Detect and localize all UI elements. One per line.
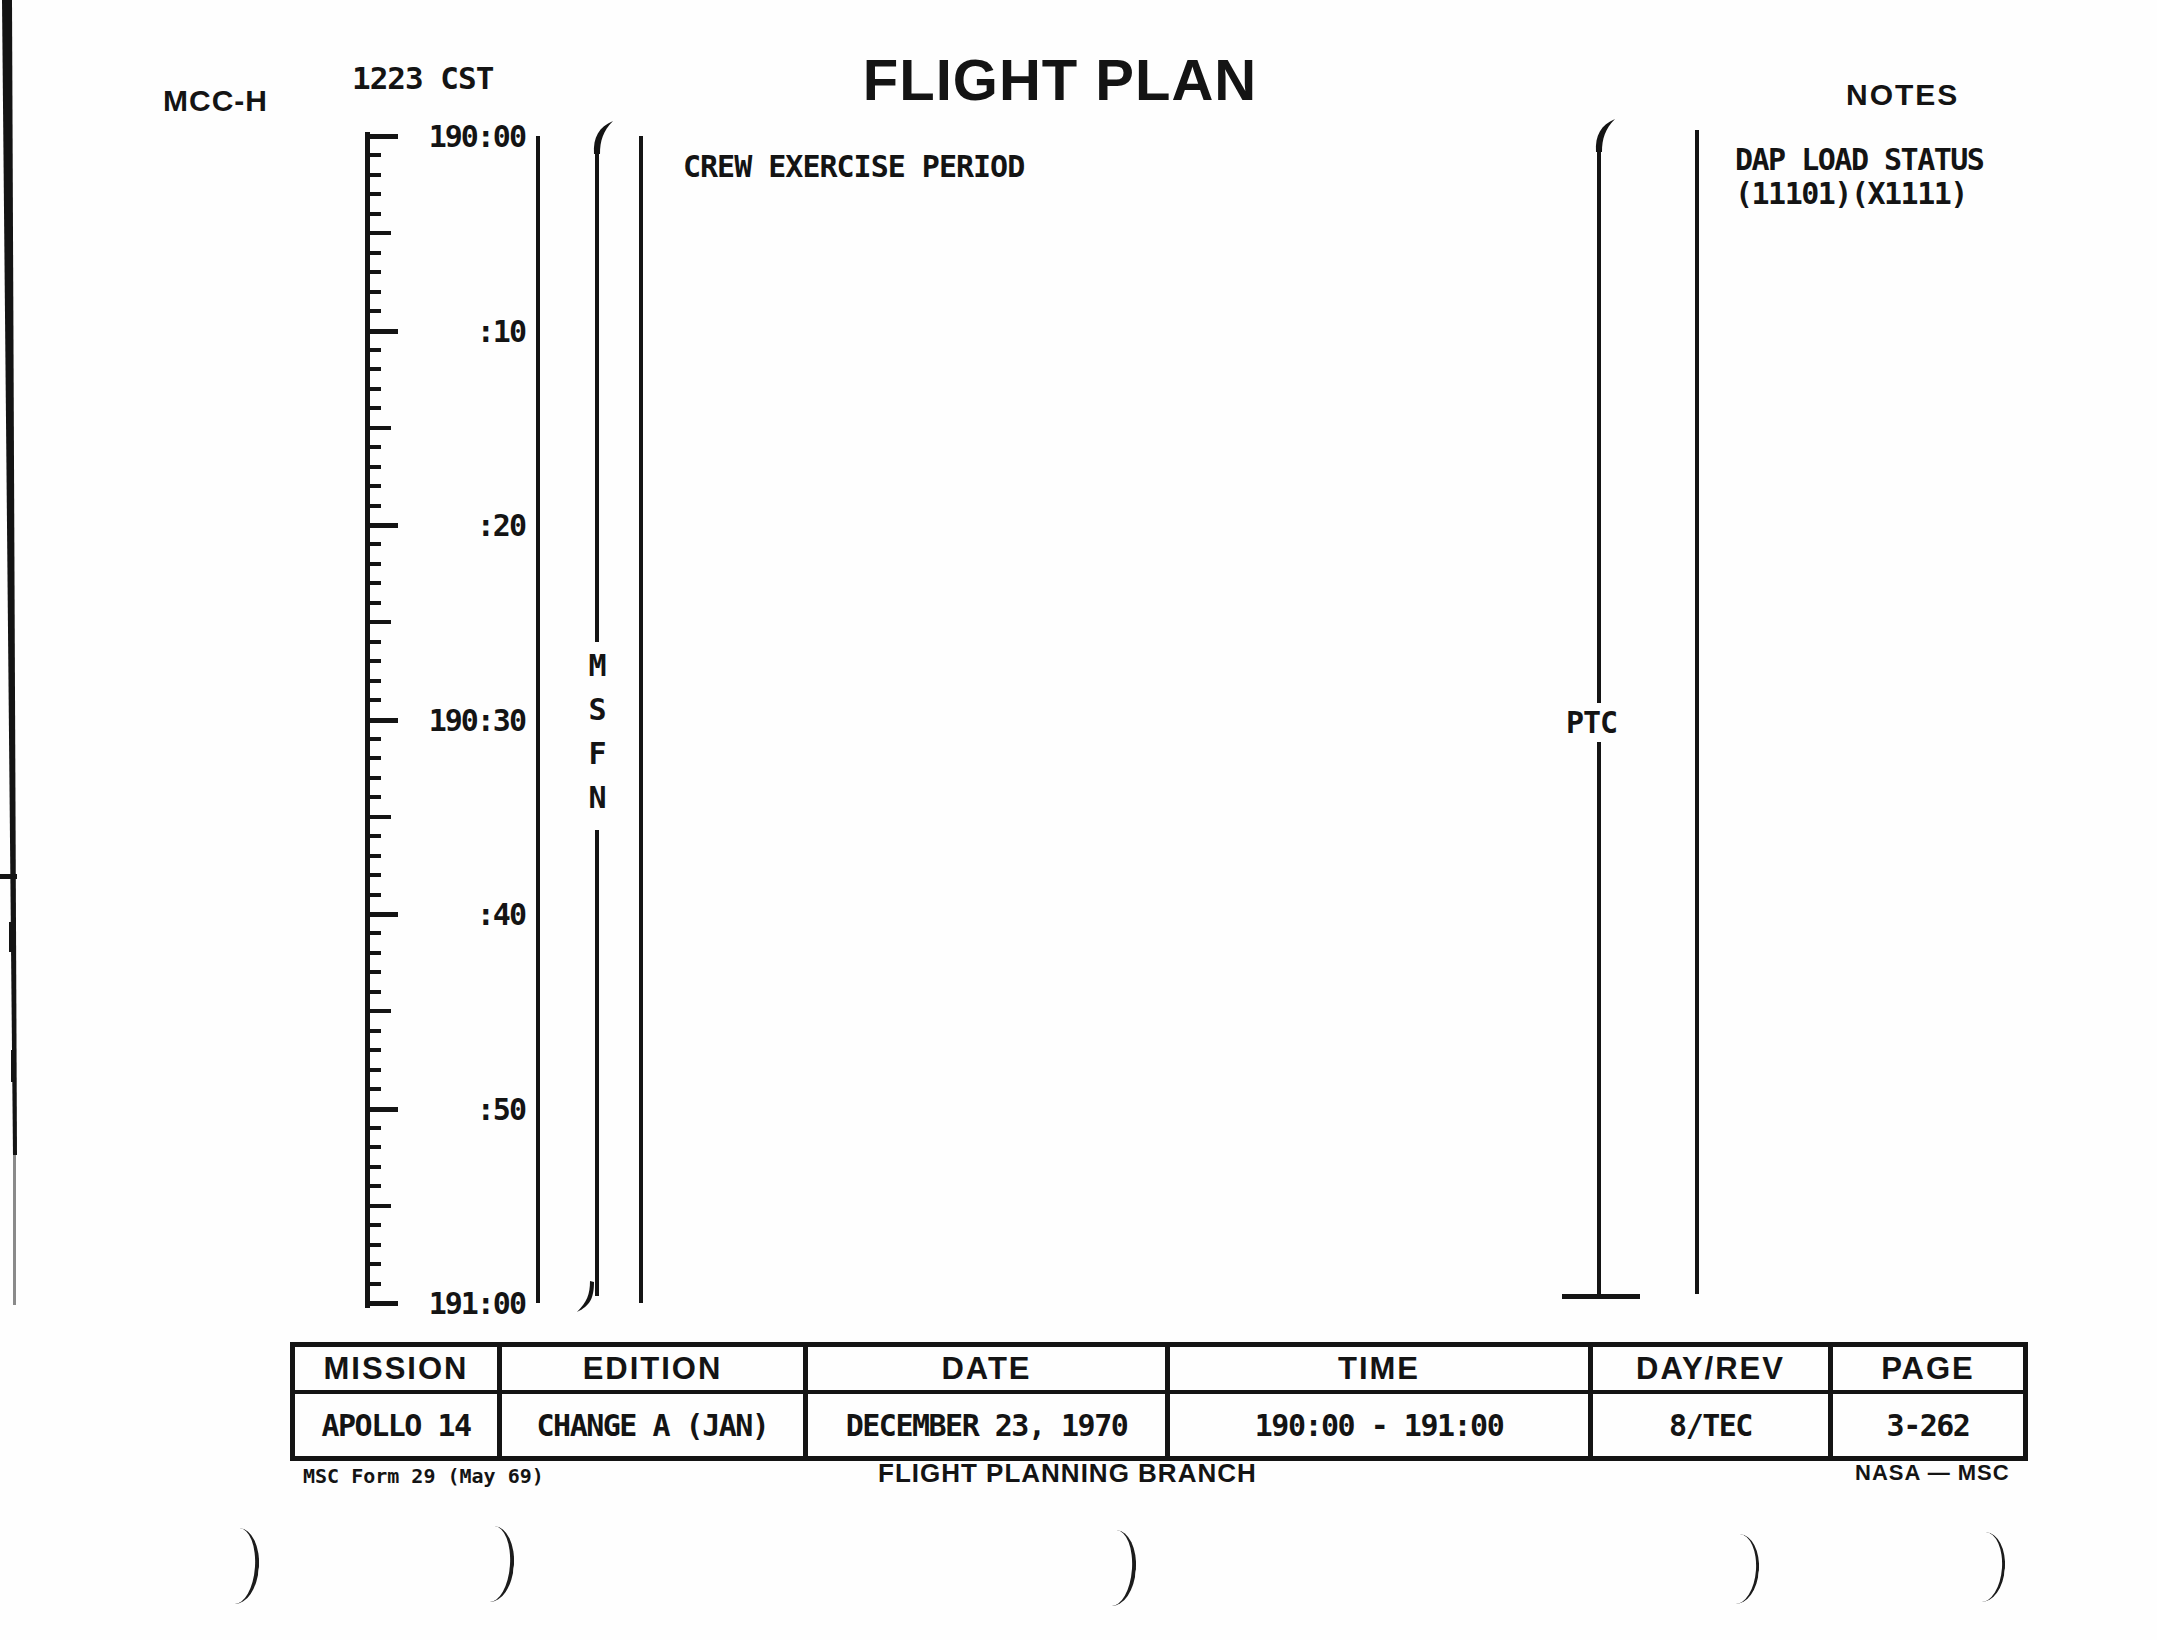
msfn-label: MSFN [579,642,615,830]
table-cell-date: DECEMBER 23, 1970 [808,1394,1170,1456]
flightplan-right-rule [639,136,643,1303]
agency-label: NASA — MSC [1855,1460,2010,1486]
activity-label: CREW EXERCISE PERIOD [683,149,1024,184]
table-header-edition: EDITION [502,1347,808,1394]
table-cell-mission: APOLLO 14 [295,1394,502,1456]
ptc-end-bar [1562,1294,1640,1299]
table-header-time: TIME [1170,1347,1593,1394]
dap-load-status-note: DAP LOAD STATUS (11101)(X1111) [1735,143,1983,211]
table-cell-dayrev: 8/TEC [1593,1394,1833,1456]
table-header-dayrev: DAY/REV [1593,1347,1833,1394]
msfn-arrowhead-bottom [577,1281,594,1312]
msfn-arrowhead-top [594,121,613,154]
table-header-date: DATE [808,1347,1170,1394]
branch-label: FLIGHT PLANNING BRANCH [878,1458,1257,1489]
ptc-label: PTC [1563,703,1620,742]
table-cell-edition: CHANGE A (JAN) [502,1394,808,1456]
table-cell-time: 190:00 - 191:00 [1170,1394,1593,1456]
form-number-label: MSC Form 29 (May 69) [303,1464,544,1488]
table-header-mission: MISSION [295,1347,502,1394]
table-header-page: PAGE [1833,1347,2023,1394]
dap-note-line2: (11101)(X1111) [1735,177,1983,211]
notes-left-rule [1695,130,1699,1294]
flightplan-left-rule [536,136,540,1303]
flight-plan-page: MCC-H 1223 CST FLIGHT PLAN NOTES 190:00:… [0,0,2157,1640]
footer-table: MISSION EDITION DATE TIME DAY/REV PAGE A… [290,1342,2028,1461]
dap-note-line1: DAP LOAD STATUS [1735,143,1983,177]
table-cell-page: 3-262 [1833,1394,2023,1456]
ptc-arrowhead-top [1596,119,1615,152]
